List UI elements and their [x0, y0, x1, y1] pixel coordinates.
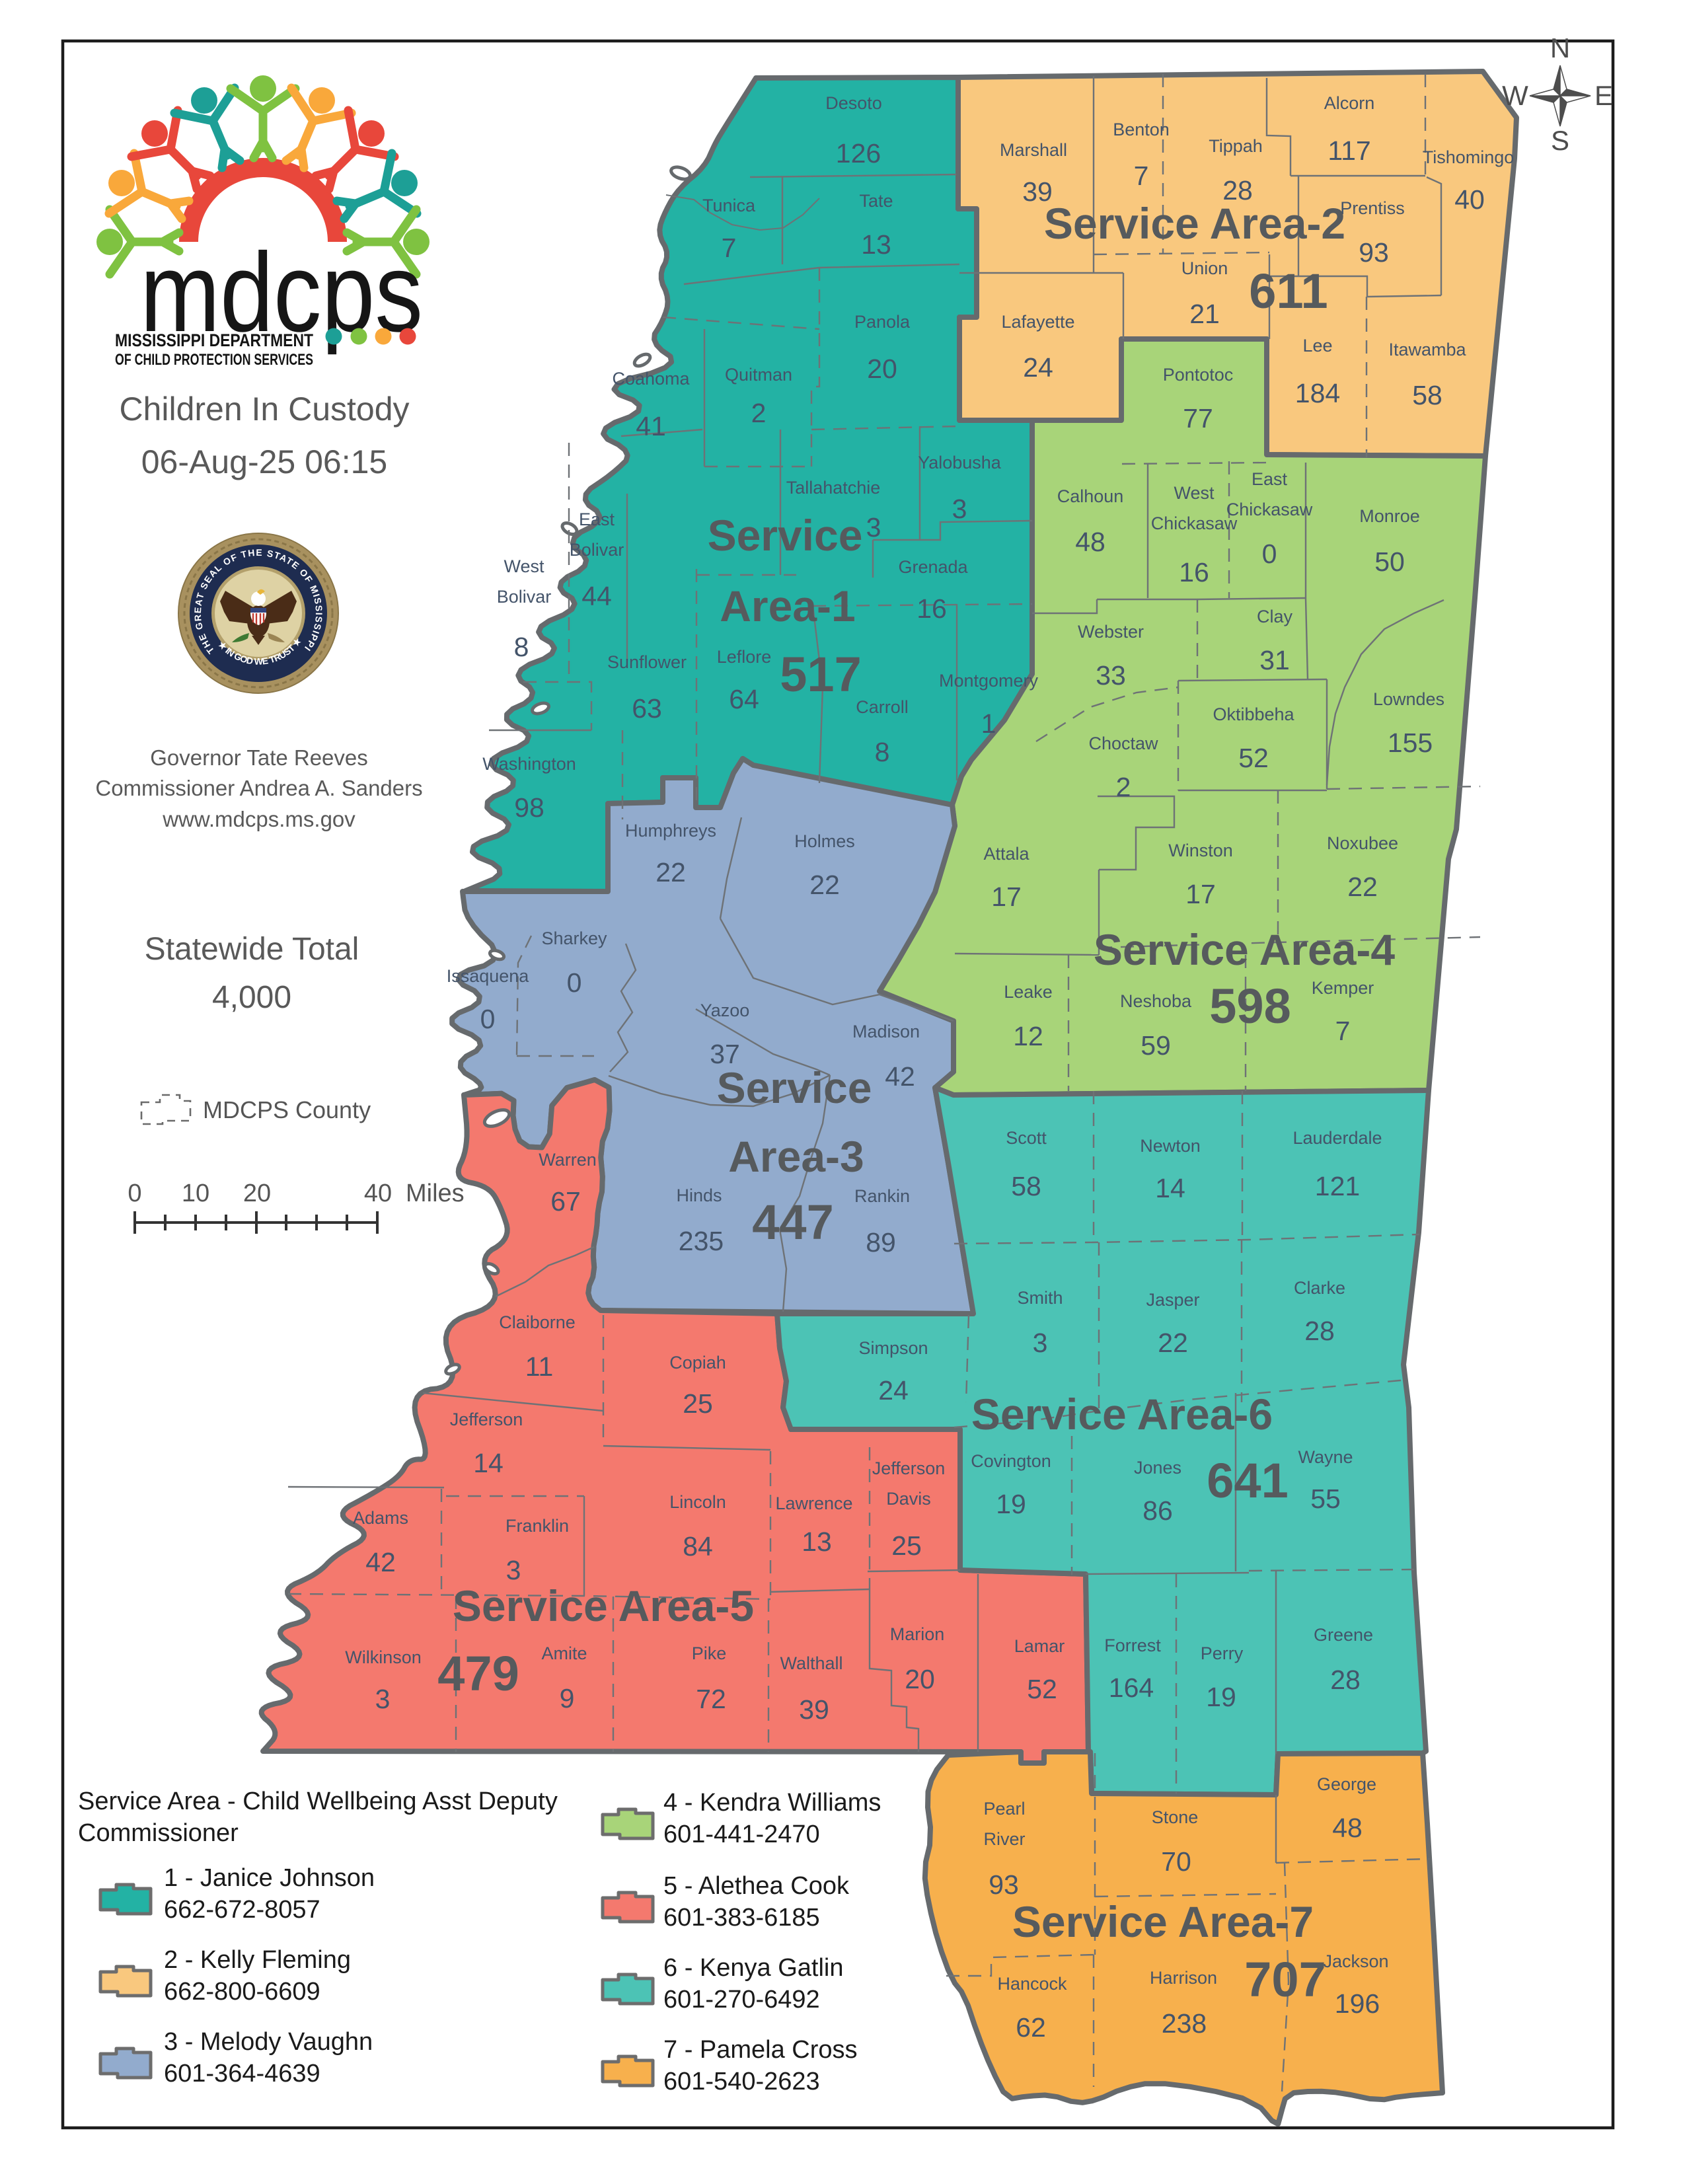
svg-text:72: 72: [696, 1684, 726, 1714]
svg-text:601-383-6185: 601-383-6185: [663, 1904, 820, 1932]
svg-text:Clay: Clay: [1257, 607, 1293, 626]
svg-text:Lincoln: Lincoln: [669, 1492, 726, 1512]
svg-text:River: River: [983, 1829, 1025, 1849]
svg-text:N: N: [1550, 32, 1570, 63]
svg-text:Jackson: Jackson: [1323, 1951, 1388, 1971]
svg-text:MISSISSIPPI DEPARTMENT: MISSISSIPPI DEPARTMENT: [115, 330, 313, 350]
svg-text:Washington: Washington: [482, 754, 576, 774]
svg-text:12: 12: [1013, 1021, 1043, 1051]
svg-text:Area-1: Area-1: [720, 582, 855, 630]
svg-text:7: 7: [722, 233, 737, 263]
svg-text:7: 7: [1134, 161, 1149, 191]
svg-text:196: 196: [1335, 1988, 1380, 2019]
svg-text:601-364-4639: 601-364-4639: [164, 2060, 320, 2088]
svg-text:S: S: [1551, 125, 1569, 156]
svg-text:447: 447: [752, 1195, 833, 1250]
svg-text:17: 17: [991, 882, 1022, 912]
svg-text:55: 55: [1310, 1484, 1341, 1514]
svg-text:10: 10: [182, 1180, 209, 1207]
svg-text:Service Area-6: Service Area-6: [971, 1390, 1273, 1439]
svg-text:Sunflower: Sunflower: [607, 652, 687, 672]
svg-text:Miles: Miles: [406, 1180, 465, 1207]
svg-text:Walthall: Walthall: [780, 1653, 842, 1673]
svg-text:Oktibbeha: Oktibbeha: [1213, 704, 1294, 724]
svg-text:Scott: Scott: [1006, 1128, 1047, 1148]
svg-text:Children In Custody: Children In Custody: [119, 391, 409, 428]
svg-text:598: 598: [1209, 979, 1291, 1034]
svg-text:42: 42: [885, 1061, 915, 1092]
svg-text:14: 14: [473, 1448, 504, 1478]
svg-text:Bolivar: Bolivar: [570, 540, 624, 560]
svg-text:707: 707: [1244, 1952, 1326, 2007]
svg-text:Monroe: Monroe: [1359, 506, 1420, 526]
svg-text:West: West: [1174, 483, 1215, 503]
svg-text:3: 3: [375, 1684, 391, 1714]
svg-text:Area-3: Area-3: [728, 1132, 864, 1181]
svg-text:Desoto: Desoto: [825, 93, 882, 113]
svg-text:662-800-6609: 662-800-6609: [164, 1978, 320, 2006]
svg-text:3: 3: [866, 512, 881, 543]
svg-text:Sharkey: Sharkey: [541, 928, 607, 948]
svg-text:Tate: Tate: [859, 191, 893, 211]
svg-text:Wilkinson: Wilkinson: [345, 1647, 422, 1667]
svg-text:Smith: Smith: [1017, 1288, 1063, 1308]
svg-text:601-270-6492: 601-270-6492: [663, 1986, 820, 2014]
svg-text:22: 22: [1158, 1328, 1188, 1358]
svg-text:93: 93: [989, 1869, 1019, 1900]
svg-text:11: 11: [525, 1351, 554, 1382]
svg-text:Pearl: Pearl: [983, 1799, 1025, 1819]
svg-text:Quitman: Quitman: [725, 365, 792, 385]
svg-text:Tunica: Tunica: [702, 196, 756, 215]
svg-text:20: 20: [243, 1180, 271, 1207]
svg-text:Service Area-4: Service Area-4: [1094, 925, 1395, 974]
svg-text:2: 2: [751, 398, 767, 428]
svg-text:33: 33: [1096, 660, 1126, 691]
svg-text:93: 93: [1359, 237, 1389, 268]
svg-text:Marshall: Marshall: [1000, 140, 1067, 160]
svg-text:Noxubee: Noxubee: [1327, 833, 1398, 853]
svg-text:Rankin: Rankin: [854, 1186, 910, 1206]
svg-text:Winston: Winston: [1168, 841, 1233, 860]
svg-text:Jones: Jones: [1134, 1458, 1181, 1478]
svg-text:5 - Alethea Cook: 5 - Alethea Cook: [663, 1872, 850, 1900]
svg-text:Grenada: Grenada: [898, 557, 968, 577]
svg-text:Holmes: Holmes: [794, 831, 855, 851]
svg-text:Tippah: Tippah: [1209, 136, 1263, 156]
svg-text:77: 77: [1183, 403, 1213, 433]
svg-text:0: 0: [128, 1180, 141, 1207]
svg-text:16: 16: [1179, 557, 1209, 587]
svg-text:40: 40: [1454, 184, 1485, 215]
svg-text:641: 641: [1207, 1453, 1288, 1508]
svg-text:East: East: [579, 509, 615, 529]
svg-text:121: 121: [1315, 1171, 1360, 1201]
svg-text:Yazoo: Yazoo: [700, 1000, 750, 1020]
svg-text:52: 52: [1238, 743, 1269, 773]
svg-text:19: 19: [996, 1489, 1026, 1519]
svg-text:Davis: Davis: [886, 1489, 931, 1509]
svg-text:Lamar: Lamar: [1014, 1636, 1065, 1656]
svg-text:67: 67: [550, 1186, 581, 1217]
svg-text:0: 0: [567, 967, 582, 998]
svg-text:OF CHILD PROTECTION SERVICES: OF CHILD PROTECTION SERVICES: [115, 351, 313, 369]
svg-text:21: 21: [1189, 299, 1220, 329]
svg-text:16: 16: [917, 593, 947, 624]
svg-text:126: 126: [836, 138, 881, 169]
svg-text:17: 17: [1185, 879, 1216, 909]
svg-text:Newton: Newton: [1140, 1136, 1201, 1156]
svg-text:2: 2: [1116, 772, 1131, 802]
svg-text:Union: Union: [1181, 258, 1228, 278]
svg-text:Governor Tate Reeves: Governor Tate Reeves: [150, 745, 368, 770]
svg-text:Claiborne: Claiborne: [499, 1312, 576, 1332]
svg-text:20: 20: [905, 1664, 935, 1694]
svg-text:Kemper: Kemper: [1312, 978, 1374, 998]
svg-text:Bolivar: Bolivar: [497, 587, 552, 607]
svg-text:Pontotoc: Pontotoc: [1163, 365, 1234, 385]
svg-text:19: 19: [1206, 1682, 1236, 1712]
svg-text:www.mdcps.ms.gov: www.mdcps.ms.gov: [162, 807, 356, 831]
svg-text:Lowndes: Lowndes: [1373, 689, 1444, 709]
svg-text:22: 22: [655, 857, 686, 887]
svg-text:Tishomingo: Tishomingo: [1423, 147, 1515, 167]
svg-text:Statewide Total: Statewide Total: [145, 932, 359, 967]
svg-text:Jefferson: Jefferson: [450, 1410, 523, 1429]
svg-text:Amite: Amite: [541, 1643, 587, 1663]
svg-text:13: 13: [802, 1526, 832, 1557]
svg-text:Alcorn: Alcorn: [1324, 93, 1375, 113]
svg-text:89: 89: [866, 1227, 896, 1258]
svg-text:611: 611: [1249, 264, 1328, 319]
svg-text:1 - Janice Johnson: 1 - Janice Johnson: [164, 1864, 375, 1892]
svg-text:Jasper: Jasper: [1146, 1290, 1199, 1310]
svg-text:Lafayette: Lafayette: [1001, 312, 1074, 332]
svg-text:Hancock: Hancock: [997, 1974, 1067, 1994]
svg-text:Service Area-2: Service Area-2: [1044, 199, 1345, 248]
svg-text:63: 63: [632, 693, 662, 724]
svg-text:28: 28: [1304, 1316, 1335, 1346]
svg-text:Lee: Lee: [1302, 336, 1332, 356]
svg-text:117: 117: [1328, 135, 1370, 166]
svg-text:Attala: Attala: [983, 844, 1030, 864]
svg-text:8: 8: [875, 737, 890, 767]
svg-text:Commissioner Andrea A. Sanders: Commissioner Andrea A. Sanders: [95, 776, 422, 800]
svg-text:70: 70: [1161, 1846, 1191, 1877]
svg-text:Chickasaw: Chickasaw: [1226, 500, 1313, 519]
svg-text:52: 52: [1027, 1674, 1057, 1704]
svg-text:East: East: [1252, 469, 1288, 489]
svg-text:164: 164: [1109, 1673, 1154, 1703]
svg-text:7 - Pamela Cross: 7 - Pamela Cross: [663, 2036, 858, 2064]
svg-text:44: 44: [581, 581, 612, 611]
svg-text:0: 0: [1262, 539, 1277, 569]
svg-text:59: 59: [1141, 1030, 1171, 1061]
svg-text:Service Area-7: Service Area-7: [1012, 1897, 1314, 1946]
svg-text:Stone: Stone: [1152, 1807, 1199, 1827]
svg-text:Neshoba: Neshoba: [1120, 991, 1192, 1011]
svg-text:9: 9: [560, 1683, 575, 1713]
svg-text:22: 22: [1347, 872, 1378, 902]
svg-text:Lawrence: Lawrence: [775, 1493, 852, 1513]
svg-text:Copiah: Copiah: [669, 1353, 726, 1373]
svg-text:Covington: Covington: [971, 1451, 1051, 1471]
svg-text:Warren: Warren: [539, 1150, 597, 1170]
svg-text:7: 7: [1335, 1016, 1351, 1046]
svg-text:Service: Service: [717, 1063, 872, 1112]
svg-text:Madison: Madison: [852, 1022, 920, 1041]
svg-text:479: 479: [437, 1646, 519, 1701]
svg-text:Franklin: Franklin: [505, 1516, 569, 1536]
svg-text:50: 50: [1374, 546, 1405, 577]
svg-text:22: 22: [809, 870, 840, 900]
svg-text:Itawamba: Itawamba: [1388, 340, 1466, 359]
svg-text:601-441-2470: 601-441-2470: [663, 1821, 820, 1848]
svg-text:Tallahatchie: Tallahatchie: [786, 478, 881, 498]
svg-text:Leake: Leake: [1004, 982, 1053, 1002]
svg-text:Montgomery: Montgomery: [939, 671, 1039, 691]
svg-text:Commissioner: Commissioner: [78, 1819, 239, 1847]
svg-text:8: 8: [514, 632, 529, 662]
svg-text:25: 25: [891, 1530, 922, 1561]
svg-text:86: 86: [1142, 1495, 1173, 1526]
svg-text:14: 14: [1155, 1173, 1185, 1203]
svg-text:Clarke: Clarke: [1294, 1278, 1345, 1298]
svg-text:Yalobusha: Yalobusha: [918, 453, 1002, 472]
svg-text:2 - Kelly Fleming: 2 - Kelly Fleming: [164, 1946, 351, 1974]
svg-text:25: 25: [683, 1388, 713, 1419]
svg-text:28: 28: [1330, 1665, 1361, 1695]
svg-text:184: 184: [1295, 378, 1340, 408]
svg-text:39: 39: [799, 1694, 829, 1725]
svg-text:3: 3: [952, 494, 967, 524]
svg-text:Perry: Perry: [1201, 1643, 1244, 1663]
svg-text:Service Area-5: Service Area-5: [453, 1581, 754, 1630]
svg-text:Benton: Benton: [1113, 120, 1170, 139]
svg-text:E: E: [1594, 80, 1613, 111]
svg-text:62: 62: [1016, 2012, 1046, 2043]
svg-text:Marion: Marion: [890, 1624, 945, 1644]
svg-text:20: 20: [867, 354, 897, 384]
svg-text:Webster: Webster: [1078, 622, 1144, 642]
svg-text:58: 58: [1412, 380, 1442, 410]
svg-text:40: 40: [364, 1180, 392, 1207]
svg-text:Greene: Greene: [1314, 1625, 1373, 1645]
svg-text:Wayne: Wayne: [1298, 1447, 1353, 1467]
svg-text:Adams: Adams: [353, 1508, 408, 1528]
svg-text:Panola: Panola: [854, 312, 911, 332]
svg-text:Coahoma: Coahoma: [612, 369, 690, 389]
svg-text:Harrison: Harrison: [1150, 1968, 1217, 1988]
svg-text:3: 3: [1033, 1328, 1048, 1358]
svg-text:06-Aug-25 06:15: 06-Aug-25 06:15: [141, 443, 388, 480]
svg-text:41: 41: [636, 411, 666, 441]
svg-text:517: 517: [780, 647, 861, 702]
svg-text:Service: Service: [708, 511, 863, 560]
svg-text:64: 64: [729, 684, 759, 714]
svg-text:4 - Kendra Williams: 4 - Kendra Williams: [663, 1789, 881, 1817]
svg-text:Pike: Pike: [692, 1643, 727, 1663]
svg-text:Forrest: Forrest: [1104, 1636, 1161, 1655]
svg-text:24: 24: [878, 1375, 909, 1406]
svg-text:4,000: 4,000: [212, 980, 291, 1015]
svg-text:48: 48: [1075, 527, 1105, 557]
svg-text:Humphreys: Humphreys: [625, 821, 716, 841]
svg-text:Carroll: Carroll: [856, 697, 909, 717]
svg-text:Service Area - Child Wellbeing: Service Area - Child Wellbeing Asst Depu…: [78, 1788, 558, 1815]
svg-text:3 - Melody Vaughn: 3 - Melody Vaughn: [164, 2028, 373, 2056]
svg-text:Chickasaw: Chickasaw: [1151, 513, 1238, 533]
svg-text:Jefferson: Jefferson: [872, 1458, 946, 1478]
svg-text:601-540-2623: 601-540-2623: [663, 2068, 820, 2095]
svg-text:13: 13: [861, 229, 891, 260]
svg-text:662-672-8057: 662-672-8057: [164, 1896, 320, 1924]
svg-text:Prentiss: Prentiss: [1340, 198, 1405, 218]
svg-text:84: 84: [683, 1531, 713, 1562]
svg-text:1: 1: [981, 708, 996, 739]
svg-text:238: 238: [1162, 2008, 1207, 2039]
svg-text:W: W: [1502, 80, 1528, 111]
svg-text:MDCPS County: MDCPS County: [203, 1096, 371, 1123]
svg-text:Issaquena: Issaquena: [447, 966, 530, 986]
svg-text:58: 58: [1011, 1171, 1041, 1201]
svg-text:31: 31: [1259, 645, 1290, 675]
svg-text:24: 24: [1023, 352, 1053, 383]
svg-text:Lauderdale: Lauderdale: [1292, 1128, 1382, 1148]
svg-text:West: West: [504, 556, 544, 576]
svg-text:0: 0: [480, 1004, 496, 1034]
svg-text:48: 48: [1332, 1813, 1363, 1843]
svg-text:Calhoun: Calhoun: [1057, 486, 1124, 506]
svg-text:6 - Kenya Gatlin: 6 - Kenya Gatlin: [663, 1954, 843, 1982]
svg-text:235: 235: [679, 1226, 724, 1256]
svg-text:Hinds: Hinds: [676, 1186, 722, 1205]
svg-text:Choctaw: Choctaw: [1088, 734, 1158, 753]
svg-text:98: 98: [514, 792, 544, 823]
svg-text:42: 42: [365, 1547, 396, 1577]
svg-text:George: George: [1317, 1774, 1376, 1794]
svg-text:Leflore: Leflore: [717, 647, 772, 667]
svg-text:155: 155: [1388, 728, 1433, 758]
svg-text:Simpson: Simpson: [858, 1338, 928, 1358]
